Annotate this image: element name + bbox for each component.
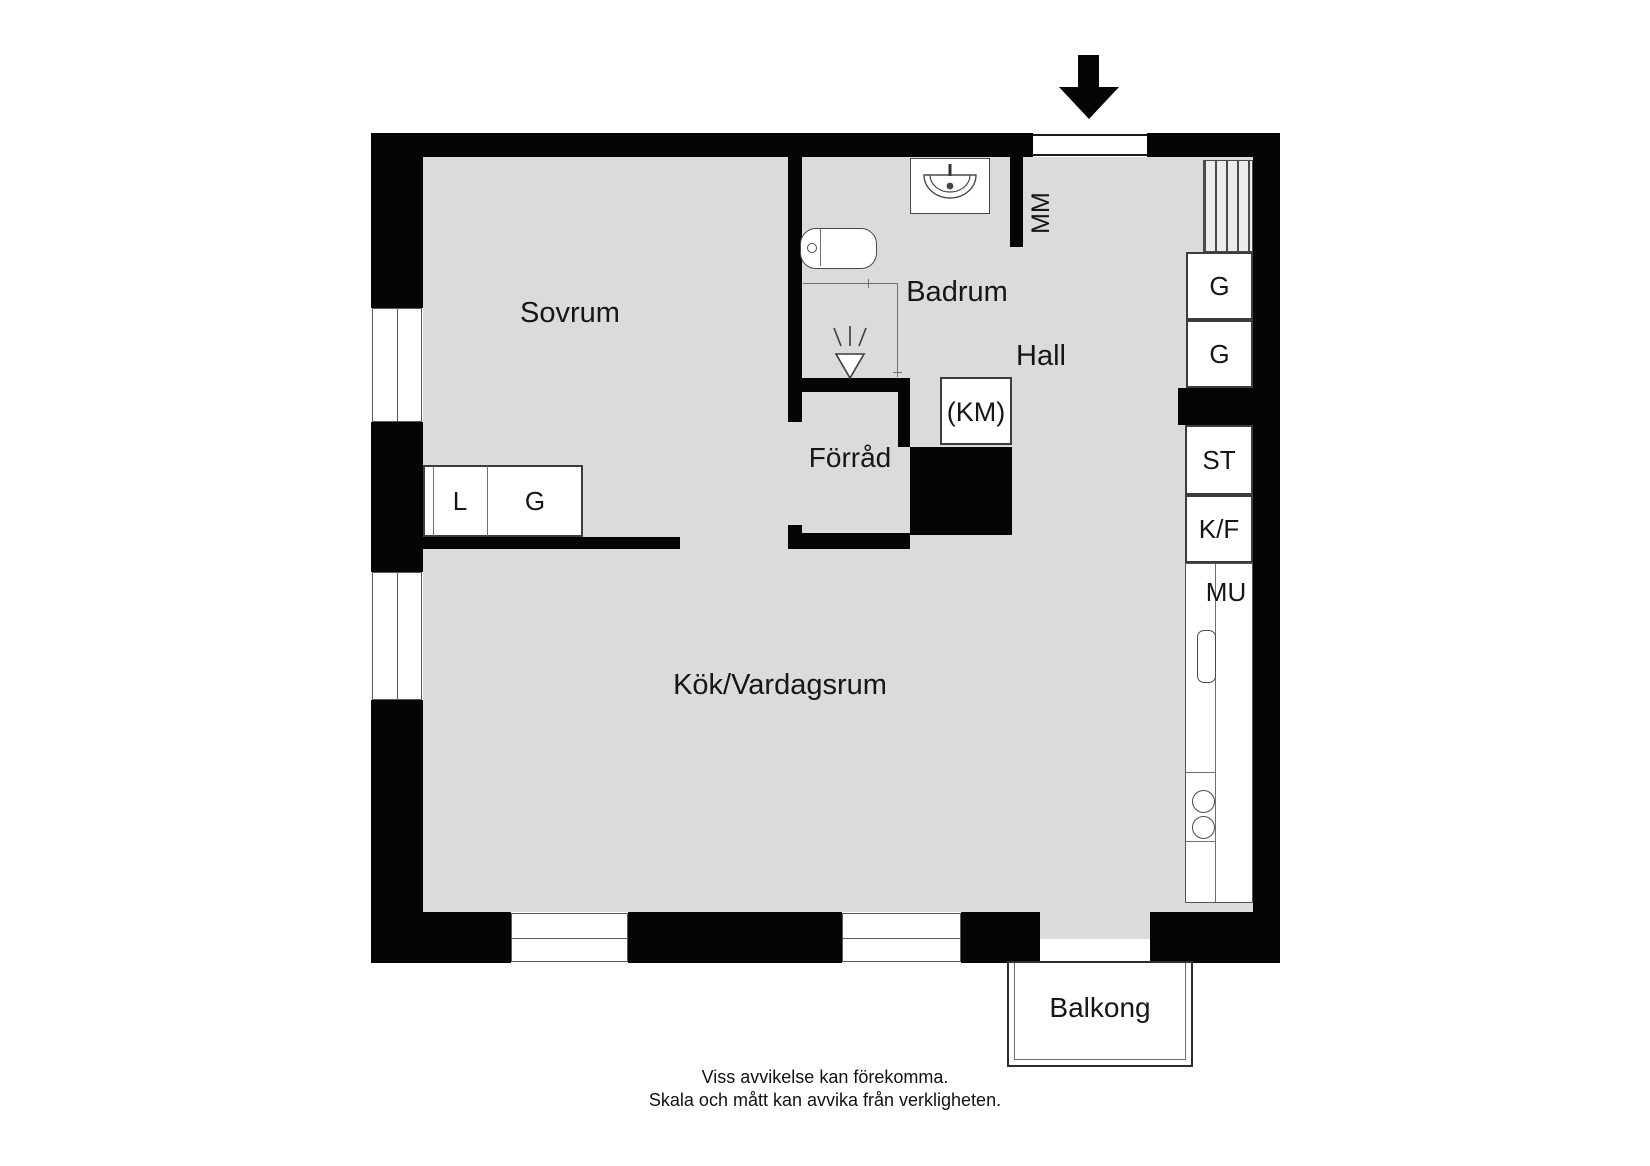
balcony-door-threshold [1040,939,1150,963]
shower-enclosure-tick-2 [893,372,902,373]
window-pane-line [843,938,960,939]
bath-sink-box [910,158,990,214]
balcony-door-opening [1040,912,1150,939]
radiator-hatch-icon [1203,160,1253,252]
wardrobe-label-g-upper: G [1186,268,1253,304]
kitchen-counter-section-line-1 [1186,772,1216,773]
wardrobe-label-g-lower: G [1186,336,1253,372]
cabinet-label-st: ST [1185,442,1253,478]
footer-line-2: Skala och mått kan avvika från verklighe… [375,1089,1275,1112]
wall-right [1253,133,1280,963]
toilet-icon [800,228,877,269]
wall-top-left [371,133,1033,157]
wall-left-middle [371,422,423,572]
floor-plan-canvas: Balkong L G G G ST K/F MU [0,0,1650,1166]
bedroom-closet-divider-1 [433,466,434,536]
window-left-lower [372,572,422,700]
microwave-label-mu: MU [1199,577,1253,607]
window-pane-line [397,573,398,699]
cabinet-label-kf: K/F [1185,511,1253,547]
wall-bottom-d [1150,912,1280,963]
shower-enclosure-tick-1 [868,279,869,288]
footer-line-1: Viss avvikelse kan förekomma. [375,1066,1275,1089]
stove-burners-icon [1192,790,1215,813]
kitchen-counter [1185,563,1253,903]
toilet-flush-button [807,243,817,253]
mm-label: MM [1024,183,1058,243]
room-label-kok-vardagsrum: Kök/Vardagsrum [600,667,960,703]
wall-hall-closet-stub [1178,388,1253,425]
entry-door-opening [1033,134,1147,156]
shower-icon [826,324,874,380]
stove-burner-2 [1192,816,1215,839]
closet-label-l: L [438,483,482,519]
km-label: (KM) [940,394,1012,430]
wall-forrad-east [898,378,910,447]
wall-sovrum-south [371,537,680,549]
room-label-sovrum: Sovrum [470,295,670,331]
wall-forrad-south [788,533,910,549]
wall-bottom-b [628,912,842,963]
window-pane-line [512,938,627,939]
room-label-badrum: Badrum [877,274,1037,310]
room-label-balkong: Balkong [1010,991,1190,1025]
window-pane-line [397,309,398,421]
closet-label-g: G [491,483,579,519]
entry-arrow-head [1059,87,1119,119]
wall-hall-badrum [1010,157,1023,247]
window-bottom-right [842,913,961,962]
bath-sink-icon [911,159,989,213]
room-label-forrad: Förråd [770,441,930,475]
window-bottom-left [511,913,628,962]
wall-forrad-north [788,378,910,392]
entry-arrow-icon [1078,55,1099,89]
kitchen-counter-section-line-2 [1186,841,1216,842]
bedroom-closet-divider-2 [487,466,488,536]
kitchen-sink-icon [1197,630,1216,683]
wall-bottom-a [371,912,511,963]
footer-disclaimer: Viss avvikelse kan förekomma. Skala och … [375,1066,1275,1112]
toilet-tank-line [820,229,821,266]
kitchen-counter-edge-line [1215,564,1216,902]
wall-bottom-c [961,912,1040,963]
window-left-upper [372,308,422,422]
wall-left-upper [371,133,423,308]
room-label-hall: Hall [991,338,1091,374]
